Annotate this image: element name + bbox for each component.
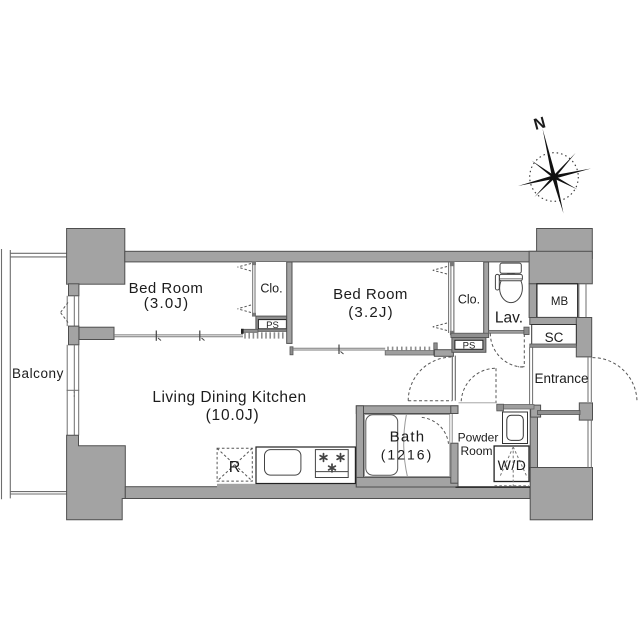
svg-text:Balcony: Balcony (12, 366, 64, 381)
svg-text:W/D: W/D (498, 457, 527, 473)
svg-text:(3.0J): (3.0J) (144, 295, 190, 312)
svg-text:(1216): (1216) (381, 447, 433, 463)
svg-text:R: R (229, 459, 241, 476)
svg-text:Bed Room: Bed Room (333, 286, 408, 303)
svg-text:Clo.: Clo. (260, 282, 282, 296)
svg-text:Bath: Bath (390, 429, 426, 446)
svg-text:Powder: Powder (458, 430, 499, 444)
svg-text:SC: SC (545, 330, 564, 345)
svg-text:(10.0J): (10.0J) (206, 407, 260, 424)
svg-text:Lav.: Lav. (495, 310, 523, 327)
svg-text:PS: PS (463, 341, 476, 352)
svg-text:(3.2J): (3.2J) (348, 304, 394, 321)
svg-text:Living Dining Kitchen: Living Dining Kitchen (152, 389, 306, 406)
svg-text:N: N (532, 114, 548, 133)
svg-text:MB: MB (551, 296, 569, 308)
svg-text:Clo.: Clo. (458, 293, 480, 307)
svg-text:Entrance: Entrance (534, 371, 588, 386)
svg-text:PS: PS (266, 320, 279, 331)
svg-text:Room: Room (460, 444, 492, 458)
